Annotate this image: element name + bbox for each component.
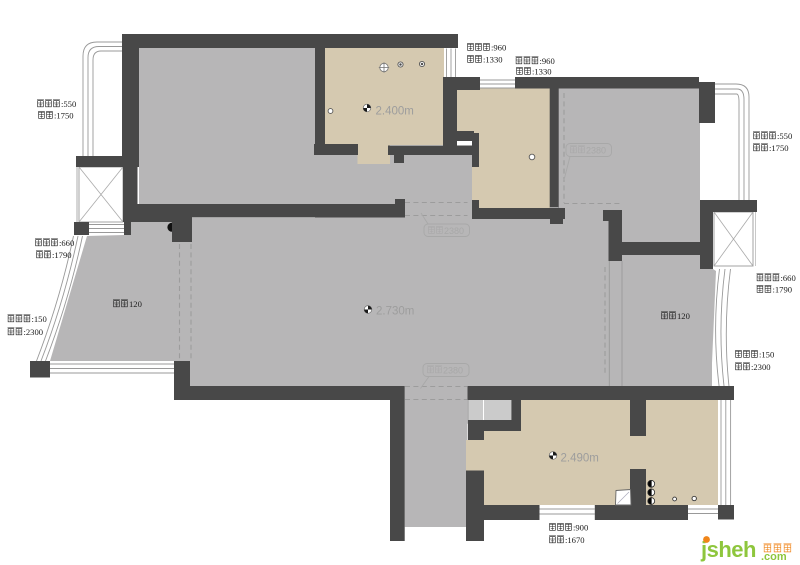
svg-text:2380: 2380 [586,146,606,156]
svg-text::900: :900 [573,523,588,533]
svg-text::1670: :1670 [565,535,585,545]
svg-text::1330: :1330 [532,67,552,77]
svg-text::660: :660 [781,273,796,283]
svg-text::550: :550 [777,131,792,141]
svg-text::150: :150 [32,314,47,324]
svg-text::1750: :1750 [769,143,789,153]
svg-text::1330: :1330 [483,55,503,65]
svg-text::1790: :1790 [52,250,72,260]
svg-text:120: 120 [129,299,142,309]
svg-text::150: :150 [759,350,774,360]
svg-text::960: :960 [491,43,506,53]
svg-text:120: 120 [677,311,690,321]
svg-text::1750: :1750 [54,111,74,121]
svg-text:2380: 2380 [444,226,464,236]
svg-text::660: :660 [59,238,74,248]
svg-text::1790: :1790 [773,285,793,295]
svg-text:2380: 2380 [443,366,463,376]
svg-text:2.730m: 2.730m [376,306,414,318]
svg-text:.com: .com [761,551,787,563]
svg-text::2300: :2300 [751,362,771,372]
svg-text::960: :960 [540,56,555,66]
svg-text::2300: :2300 [24,327,44,337]
svg-text::550: :550 [61,99,76,109]
svg-text:2.490m: 2.490m [561,453,599,465]
svg-text:2.400m: 2.400m [376,106,414,118]
